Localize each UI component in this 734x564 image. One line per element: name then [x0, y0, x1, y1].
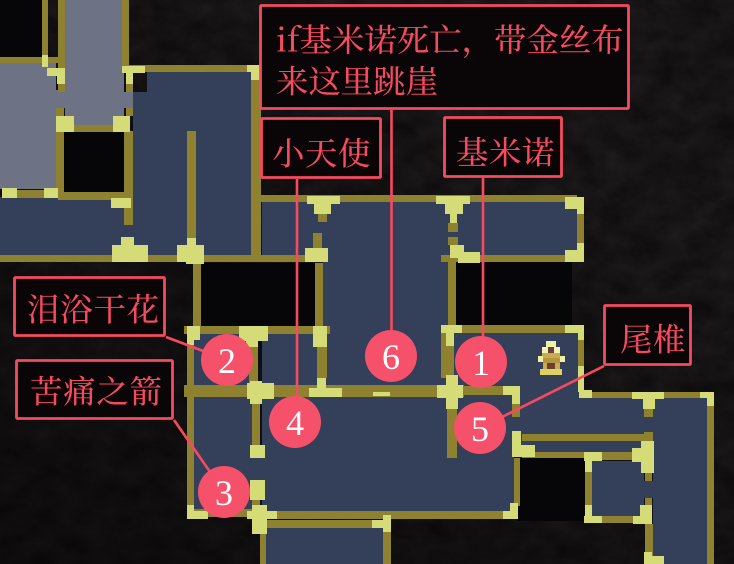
svg-text:3: 3 — [215, 473, 233, 513]
svg-text:2: 2 — [218, 341, 236, 381]
svg-text:6: 6 — [382, 337, 400, 377]
svg-text:4: 4 — [286, 403, 304, 443]
svg-text:1: 1 — [472, 343, 490, 383]
svg-text:5: 5 — [471, 409, 489, 449]
